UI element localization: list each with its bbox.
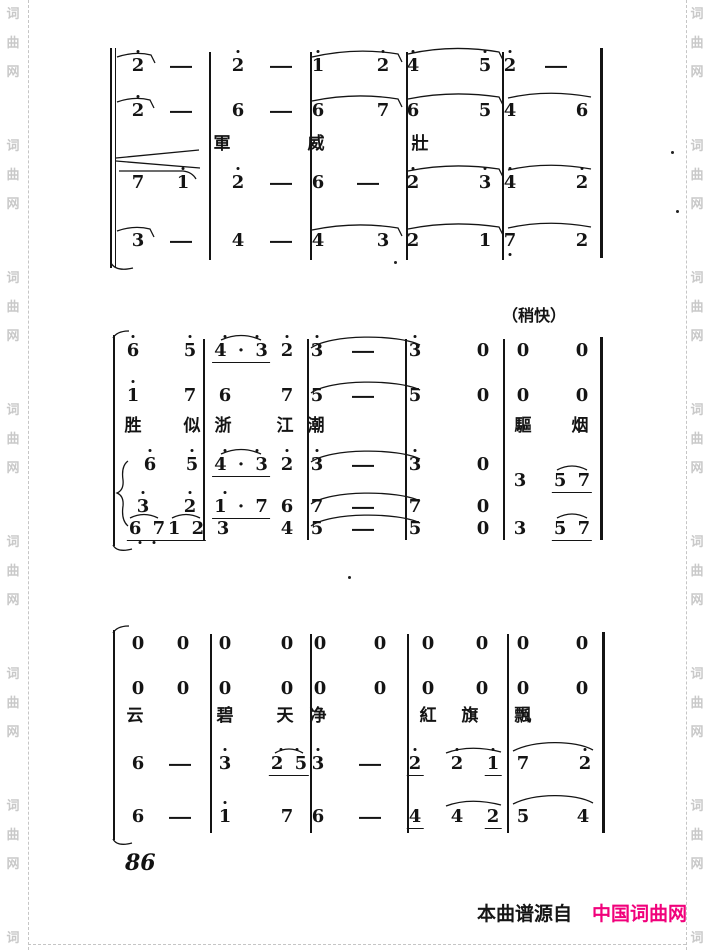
- octave-dot: [484, 50, 487, 53]
- note: 3: [312, 755, 325, 773]
- note: 2: [576, 174, 589, 192]
- extension-dash: [270, 241, 292, 243]
- octave-dot: [296, 748, 299, 751]
- octave-dot: [256, 449, 259, 452]
- octave-dot: [456, 748, 459, 751]
- note: 2: [184, 498, 197, 516]
- extension-dash: [270, 66, 292, 68]
- source-credit: 本曲谱源自 中国词曲网: [477, 899, 687, 926]
- note: 0: [219, 680, 232, 698]
- octave-dot: [189, 335, 192, 338]
- octave-dot: [316, 449, 319, 452]
- tempo-mark: （稍快）: [502, 302, 566, 326]
- note: 0: [517, 680, 530, 698]
- octave-dot: [224, 491, 227, 494]
- note: 4: [504, 174, 517, 192]
- note: 0: [517, 635, 530, 653]
- octave-dot: [414, 748, 417, 751]
- lyric-char: 云: [127, 708, 144, 725]
- note: 7: [132, 174, 145, 192]
- extension-dash: [169, 817, 191, 819]
- note: 5: [517, 808, 530, 826]
- extension-dash: [352, 507, 374, 509]
- slur-arc: [117, 461, 128, 526]
- barline: [307, 339, 309, 540]
- note: 0: [476, 680, 489, 698]
- note: 2: [281, 342, 294, 360]
- lyric-char: 旗: [462, 708, 479, 725]
- octave-dot: [492, 748, 495, 751]
- lyric-char: 飄: [515, 708, 532, 725]
- scan-speck: [676, 210, 679, 213]
- octave-dot: [484, 167, 487, 170]
- note: 5: [479, 102, 492, 120]
- octave-dot: [142, 491, 145, 494]
- note: 0: [576, 680, 589, 698]
- barline: [113, 335, 115, 546]
- note: 2: [132, 57, 145, 75]
- extension-dash: [357, 183, 379, 185]
- lyric-char: 江: [277, 418, 294, 435]
- slur-arc: [508, 93, 591, 98]
- octave-dot: [149, 449, 152, 452]
- note: 0: [177, 680, 190, 698]
- note: 6: [219, 387, 232, 405]
- note: 2: [407, 174, 420, 192]
- note: 3: [132, 232, 145, 250]
- note: 3: [409, 342, 422, 360]
- note: 3: [514, 520, 527, 538]
- lyric-char: 天: [277, 708, 294, 725]
- note: 6: [312, 174, 325, 192]
- octave-dot: [317, 50, 320, 53]
- extension-dash: [170, 66, 192, 68]
- note: 1: [312, 57, 325, 75]
- extension-dash: [352, 465, 374, 467]
- source-site-link[interactable]: 中国词曲网: [592, 899, 687, 926]
- lyric-char: 驅: [515, 418, 532, 435]
- note: 4: [504, 102, 517, 120]
- barline: [110, 48, 112, 268]
- octave-dot: [584, 748, 587, 751]
- octave-dot: [412, 50, 415, 53]
- slur-arc: [116, 161, 200, 168]
- note: 2: [504, 57, 517, 75]
- octave-dot: [237, 167, 240, 170]
- note: 3: [409, 456, 422, 474]
- note: 6: [312, 102, 325, 120]
- note: 2: [407, 232, 420, 250]
- note: 3: [479, 174, 492, 192]
- barline: [113, 630, 115, 840]
- score-page: 词曲网词曲网词曲网词曲网词曲网词曲网词曲网词曲网 词曲网词曲网词曲网词曲网词曲网…: [0, 0, 710, 950]
- note: 4 · 3: [212, 342, 270, 363]
- lyric-char: 碧: [217, 708, 234, 725]
- note: 4: [312, 232, 325, 250]
- note: 7: [517, 755, 530, 773]
- lyric-char: 胜: [125, 418, 142, 435]
- barline: [310, 52, 312, 260]
- page-number: 86: [125, 850, 156, 876]
- extension-dash: [352, 529, 374, 531]
- note: 0: [422, 680, 435, 698]
- note: 1: [177, 174, 190, 192]
- extension-dash: [270, 183, 292, 185]
- octave-dot: [182, 167, 185, 170]
- lyric-char: 軍: [214, 136, 231, 153]
- slur-arc: [113, 839, 132, 844]
- barline: [209, 52, 211, 260]
- note: 2: [576, 232, 589, 250]
- note: 2: [407, 755, 424, 776]
- scan-speck: [394, 261, 397, 264]
- slur-arc: [113, 626, 129, 633]
- note: 2: [579, 755, 592, 773]
- note: 5: [409, 520, 422, 538]
- octave-dot: [139, 541, 142, 544]
- note: 7: [184, 387, 197, 405]
- octave-dot: [382, 50, 385, 53]
- note: 0: [132, 680, 145, 698]
- octave-dot: [509, 167, 512, 170]
- slur-arc: [513, 743, 593, 751]
- slur-arc: [508, 223, 591, 228]
- octave-dot: [414, 449, 417, 452]
- octave-dot: [132, 380, 135, 383]
- octave-dot: [224, 449, 227, 452]
- lyric-char: 紅: [420, 708, 437, 725]
- note: 5 7: [552, 520, 592, 541]
- extension-dash: [352, 396, 374, 398]
- note: 3: [311, 456, 324, 474]
- source-prefix: 本曲谱源自: [477, 899, 572, 926]
- scan-speck: [671, 151, 674, 154]
- note: 6: [144, 456, 157, 474]
- note: 6: [576, 102, 589, 120]
- note: 5: [479, 57, 492, 75]
- lyric-char: 似: [184, 418, 201, 435]
- barline: [502, 52, 504, 260]
- barline: [600, 48, 603, 258]
- barline: [310, 634, 312, 833]
- note: 3: [137, 498, 150, 516]
- barline: [407, 634, 409, 833]
- note: 3: [514, 472, 527, 490]
- note: 5: [311, 520, 324, 538]
- extension-dash: [359, 817, 381, 819]
- octave-dot: [237, 50, 240, 53]
- note: 6: [127, 342, 140, 360]
- slur-arc: [113, 331, 129, 338]
- barline: [507, 634, 509, 833]
- note: 6: [132, 755, 145, 773]
- slur-arc: [311, 382, 420, 393]
- note: 0: [374, 680, 387, 698]
- slur-arc: [513, 796, 593, 804]
- lyric-char: 烟: [572, 418, 589, 435]
- lyric-char: 壯: [412, 136, 429, 153]
- note: 0: [374, 635, 387, 653]
- barline: [602, 632, 605, 833]
- note: 7: [504, 232, 517, 250]
- note: 0: [314, 635, 327, 653]
- note: 0: [477, 520, 490, 538]
- octave-dot: [509, 253, 512, 256]
- note: 3: [217, 520, 230, 538]
- note: 6: [312, 808, 325, 826]
- note: 5: [184, 342, 197, 360]
- extension-dash: [170, 111, 192, 113]
- slur-arc: [508, 165, 591, 170]
- octave-dot: [286, 449, 289, 452]
- slur-arc: [311, 451, 420, 462]
- note: 7: [281, 808, 294, 826]
- octave-dot: [286, 335, 289, 338]
- octave-dot: [189, 491, 192, 494]
- extension-dash: [545, 66, 567, 68]
- note: 2: [485, 808, 502, 829]
- note: 5: [409, 387, 422, 405]
- note: 0: [517, 387, 530, 405]
- barline: [405, 339, 407, 540]
- note: 2: [377, 57, 390, 75]
- octave-dot: [412, 167, 415, 170]
- note: 2: [232, 57, 245, 75]
- note: 0: [477, 456, 490, 474]
- barline: [503, 339, 505, 540]
- extension-dash: [270, 111, 292, 113]
- note: 7: [377, 102, 390, 120]
- note: 1 2: [166, 520, 206, 541]
- note: 5 7: [552, 472, 592, 493]
- octave-dot: [224, 335, 227, 338]
- octave-dot: [280, 748, 283, 751]
- lyric-char: 威: [308, 136, 325, 153]
- barline: [115, 48, 117, 268]
- octave-dot: [224, 801, 227, 804]
- note: 4: [407, 808, 424, 829]
- note: 4 · 3: [212, 456, 270, 477]
- octave-dot: [414, 335, 417, 338]
- note: 0: [476, 635, 489, 653]
- note: 0: [576, 635, 589, 653]
- note: 4: [451, 808, 464, 826]
- extension-dash: [359, 764, 381, 766]
- barline: [203, 339, 205, 540]
- note: 3: [219, 755, 232, 773]
- slur-arc: [311, 515, 420, 526]
- lyric-char: 净: [310, 708, 327, 725]
- note: 0: [281, 635, 294, 653]
- note: 0: [177, 635, 190, 653]
- extension-dash: [169, 764, 191, 766]
- barline: [406, 52, 408, 260]
- barline: [210, 634, 212, 833]
- note: 6 7: [127, 520, 167, 541]
- note: 6: [232, 102, 245, 120]
- note: 3: [377, 232, 390, 250]
- note: 0: [576, 342, 589, 360]
- note: 6: [281, 498, 294, 516]
- note: 0: [517, 342, 530, 360]
- note: 0: [132, 635, 145, 653]
- octave-dot: [317, 748, 320, 751]
- note: 2: [232, 174, 245, 192]
- note: 0: [314, 680, 327, 698]
- note: 2: [281, 456, 294, 474]
- note: 2 5: [269, 755, 309, 776]
- slur-arc: [113, 545, 132, 550]
- octave-dot: [137, 50, 140, 53]
- octave-dot: [316, 335, 319, 338]
- octave-dot: [132, 335, 135, 338]
- note: 1: [219, 808, 232, 826]
- slur-arc: [116, 150, 199, 158]
- octave-dot: [137, 95, 140, 98]
- note: 0: [477, 387, 490, 405]
- lyric-char: 浙: [215, 418, 232, 435]
- octave-dot: [509, 50, 512, 53]
- slur-arc: [311, 493, 420, 504]
- note: 0: [576, 387, 589, 405]
- octave-dot: [191, 449, 194, 452]
- note: 6: [407, 102, 420, 120]
- note: 7: [409, 498, 422, 516]
- slur-arc: [311, 337, 420, 348]
- note: 4: [281, 520, 294, 538]
- octave-dot: [581, 167, 584, 170]
- octave-dot: [224, 748, 227, 751]
- note: 0: [219, 635, 232, 653]
- lyric-char: 潮: [308, 418, 325, 435]
- note: 2: [451, 755, 464, 773]
- scan-speck: [348, 576, 351, 579]
- note: 3: [311, 342, 324, 360]
- note: 2: [132, 102, 145, 120]
- note: 5: [186, 456, 199, 474]
- note: 0: [281, 680, 294, 698]
- note: 7: [311, 498, 324, 516]
- note: 0: [422, 635, 435, 653]
- note: 5: [311, 387, 324, 405]
- barline: [600, 337, 603, 540]
- note: 1 · 7: [212, 498, 270, 519]
- octave-dot: [153, 541, 156, 544]
- note: 0: [477, 498, 490, 516]
- note: 6: [132, 808, 145, 826]
- note: 4: [407, 57, 420, 75]
- note: 0: [477, 342, 490, 360]
- note: 1: [485, 755, 502, 776]
- note: 7: [281, 387, 294, 405]
- note: 4: [577, 808, 590, 826]
- octave-dot: [256, 335, 259, 338]
- note: 4: [232, 232, 245, 250]
- note: 1: [479, 232, 492, 250]
- extension-dash: [352, 351, 374, 353]
- note: 1: [127, 387, 140, 405]
- extension-dash: [170, 241, 192, 243]
